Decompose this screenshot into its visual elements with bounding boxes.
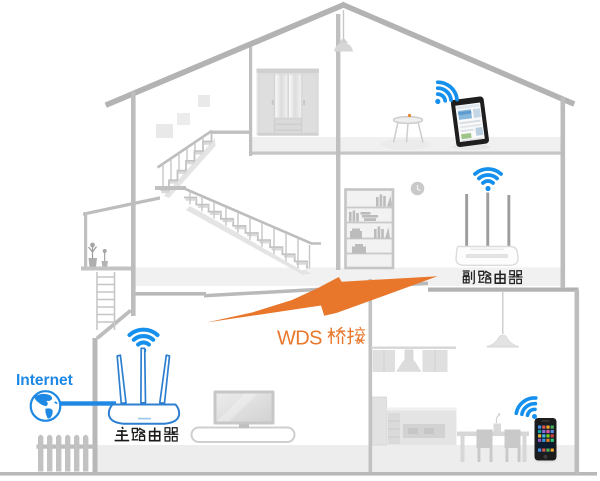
svg-text:WDS: WDS	[277, 328, 322, 350]
svg-text:Internet: Internet	[16, 372, 73, 389]
